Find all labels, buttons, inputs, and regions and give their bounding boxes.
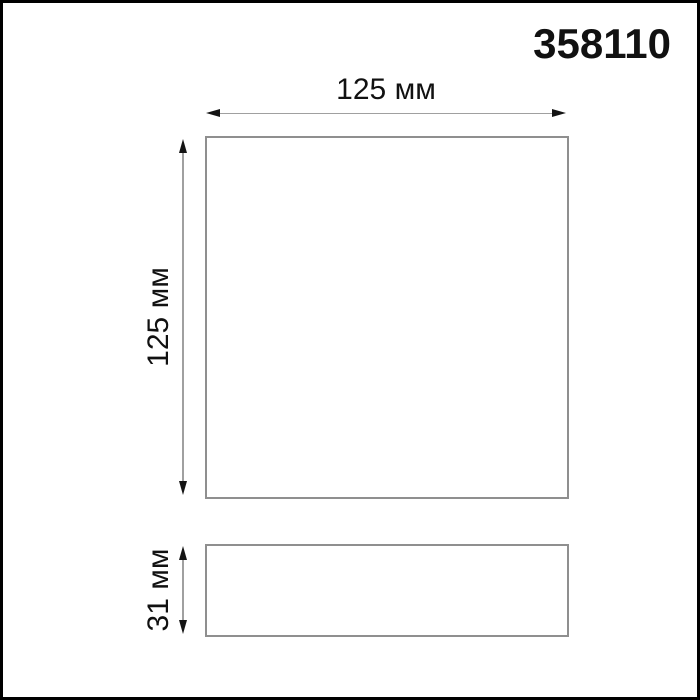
product-code: 358110: [533, 23, 671, 65]
arrow-down-icon: [179, 620, 187, 634]
depth-dimension-label: 31 мм: [144, 549, 174, 632]
arrow-right-icon: [552, 109, 566, 117]
front-view-outline: [205, 136, 569, 499]
drawing-canvas: 358110 125 мм 125 мм 31 мм: [0, 0, 700, 700]
arrow-left-icon: [206, 109, 220, 117]
arrow-up-icon: [179, 139, 187, 153]
arrow-down-icon: [179, 481, 187, 495]
side-view-outline: [205, 544, 569, 637]
height-dimension-label: 125 мм: [144, 267, 174, 367]
arrow-up-icon: [179, 546, 187, 560]
height-dimension-line: [182, 150, 184, 484]
width-dimension-line: [217, 113, 555, 115]
width-dimension-label: 125 мм: [336, 75, 436, 105]
depth-dimension-line: [182, 557, 184, 623]
